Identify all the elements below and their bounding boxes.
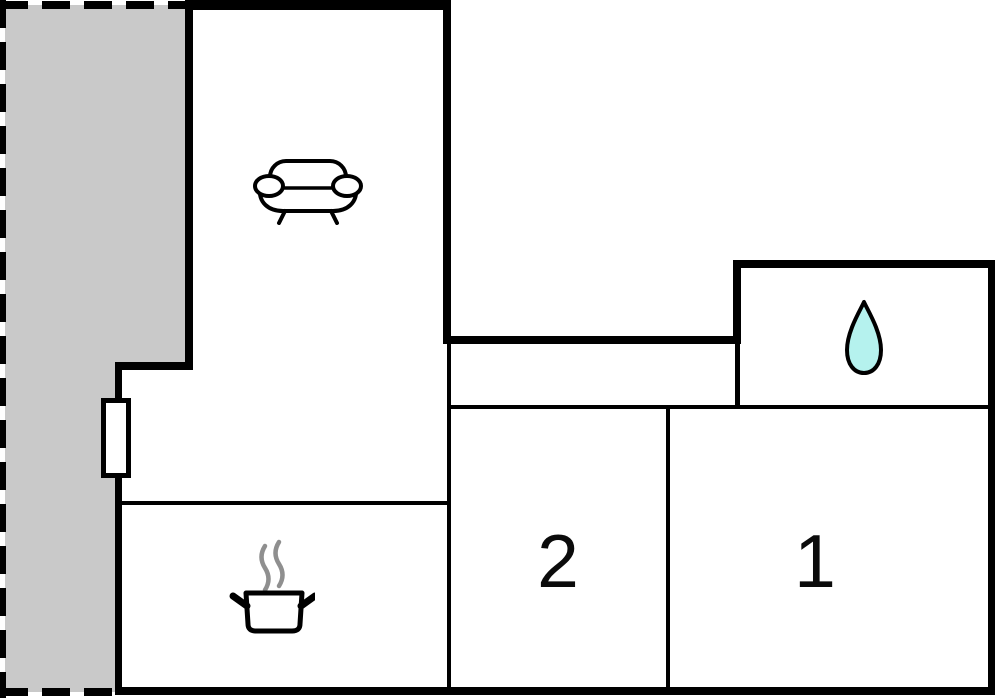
room-hallway: [451, 344, 735, 405]
wall-bathroom-top: [733, 260, 995, 268]
room-living: [193, 10, 443, 502]
wall-living-left: [185, 0, 193, 370]
room-bathroom: [741, 268, 988, 405]
bedroom-1-label: 1: [715, 514, 915, 609]
room-bedroom-2: 2: [451, 409, 666, 687]
terrace-area-upper: [5, 5, 188, 367]
terrace-dashed-border-top: [0, 1, 188, 9]
partition-bathroom-left-lower: [735, 344, 740, 409]
wall-hallway-top: [443, 336, 741, 344]
window-marker: [101, 398, 131, 478]
terrace-dashed-border-left: [0, 0, 6, 698]
room-kitchen: [122, 505, 447, 687]
cooking-pot-icon: [225, 536, 315, 636]
wall-living-top: [185, 0, 451, 10]
wall-step: [115, 362, 193, 370]
wall-living-right: [443, 0, 451, 344]
sofa-icon: [253, 159, 363, 225]
floor-plan: 2 1: [0, 0, 1000, 698]
wall-bottom: [115, 687, 995, 695]
bedroom-2-label: 2: [458, 514, 658, 609]
room-bedroom-1: 1: [670, 409, 988, 687]
wall-bathroom-left: [733, 260, 741, 344]
wall-right: [988, 260, 995, 695]
water-drop-icon: [842, 299, 886, 377]
terrace-dashed-border-bottom: [0, 688, 121, 696]
